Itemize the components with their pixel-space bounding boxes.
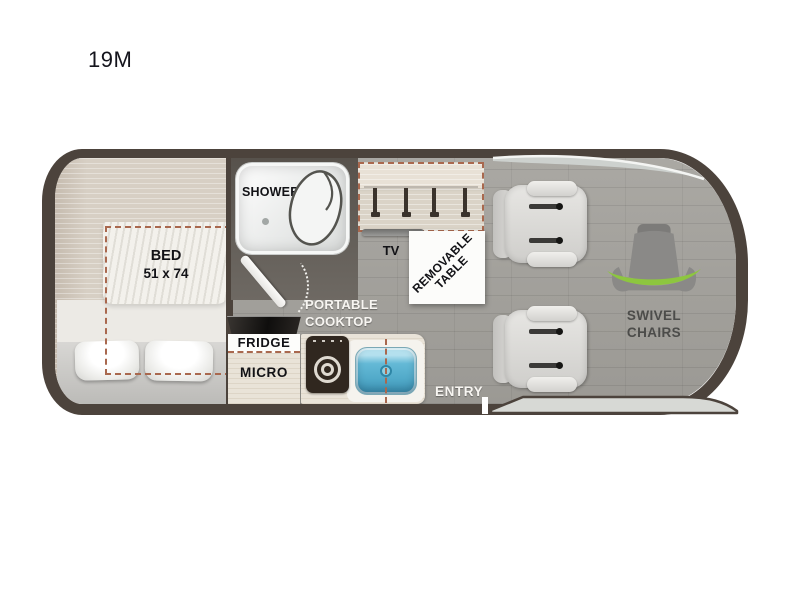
windshield-icon <box>490 151 708 185</box>
shower-drain-icon <box>262 218 269 225</box>
toilet-icon <box>280 169 346 249</box>
seat-armrest <box>527 306 577 321</box>
cooktop-icon <box>306 336 349 393</box>
removable-table-label: REMOVABLE TABLE <box>410 231 484 305</box>
entry-step-icon <box>487 394 745 416</box>
entry-label: ENTRY <box>435 384 483 399</box>
bed-size-text: 51 x 74 <box>105 265 227 282</box>
hanger-rod-icon <box>404 188 408 216</box>
seat-rail <box>529 204 559 209</box>
portable-cooktop-label: PORTABLE COOKTOP <box>305 296 378 330</box>
van-interior-floor: BED 51 x 74 SHOWER <box>55 158 736 404</box>
swivel-seat-rear <box>493 306 589 392</box>
portable-cooktop-line2: COOKTOP <box>305 313 378 330</box>
microwave-cabinet: MICRO <box>228 353 300 404</box>
hanger-rod-icon <box>432 188 436 216</box>
wardrobe <box>358 162 484 232</box>
swivel-chairs-label: SWIVEL CHAIRS <box>595 308 713 341</box>
bed-area: BED 51 x 74 <box>55 158 231 404</box>
fridge-label: FRIDGE <box>228 334 300 353</box>
wardrobe-rail <box>364 186 478 188</box>
bed-label: BED 51 x 74 <box>105 248 227 282</box>
seat-rail <box>529 329 559 334</box>
seat-armrest <box>527 377 577 392</box>
counter-dashed-line <box>385 339 387 403</box>
swivel-chairs-line1: SWIVEL <box>595 308 713 325</box>
shower-stall: SHOWER <box>236 163 349 254</box>
microwave-label: MICRO <box>240 365 288 380</box>
swivel-chair-icon <box>605 224 703 306</box>
floorplan-model-code: 19M <box>88 47 132 73</box>
hanger-rod-icon <box>463 188 467 216</box>
seat-rail <box>529 238 559 243</box>
burner-ring-icon <box>321 363 334 376</box>
hanger-rod-icon <box>373 188 377 216</box>
van-outline: BED 51 x 74 SHOWER <box>42 149 748 415</box>
seat-armrest <box>527 252 577 267</box>
seat-rail <box>529 363 559 368</box>
portable-cooktop-line1: PORTABLE <box>305 296 378 313</box>
entry-door-gap <box>482 397 488 414</box>
swivel-seat-front <box>493 181 589 267</box>
bed-label-text: BED <box>105 248 227 265</box>
fridge-icon <box>227 316 301 334</box>
tv-label: TV <box>373 243 409 258</box>
swivel-chairs-line2: CHAIRS <box>595 325 713 342</box>
floorplan-page: 19M BED 51 x 74 SHOWER <box>0 0 800 600</box>
removable-table: REMOVABLE TABLE <box>409 231 485 304</box>
